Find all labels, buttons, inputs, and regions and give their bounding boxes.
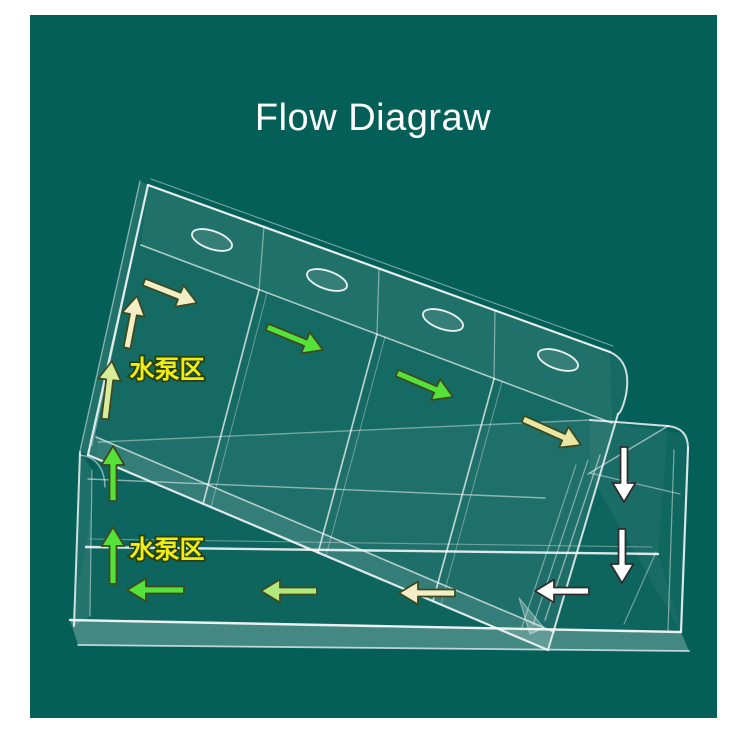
pump-area-label-bottom: 水泵区 <box>129 536 204 564</box>
flow-diagram-image: Flow Diagraw <box>0 0 750 741</box>
product-flow-diagram-page: Flow Diagraw <box>0 0 750 741</box>
pump-area-label-top: 水泵区 <box>129 356 204 384</box>
page-title: Flow Diagraw <box>255 97 491 139</box>
